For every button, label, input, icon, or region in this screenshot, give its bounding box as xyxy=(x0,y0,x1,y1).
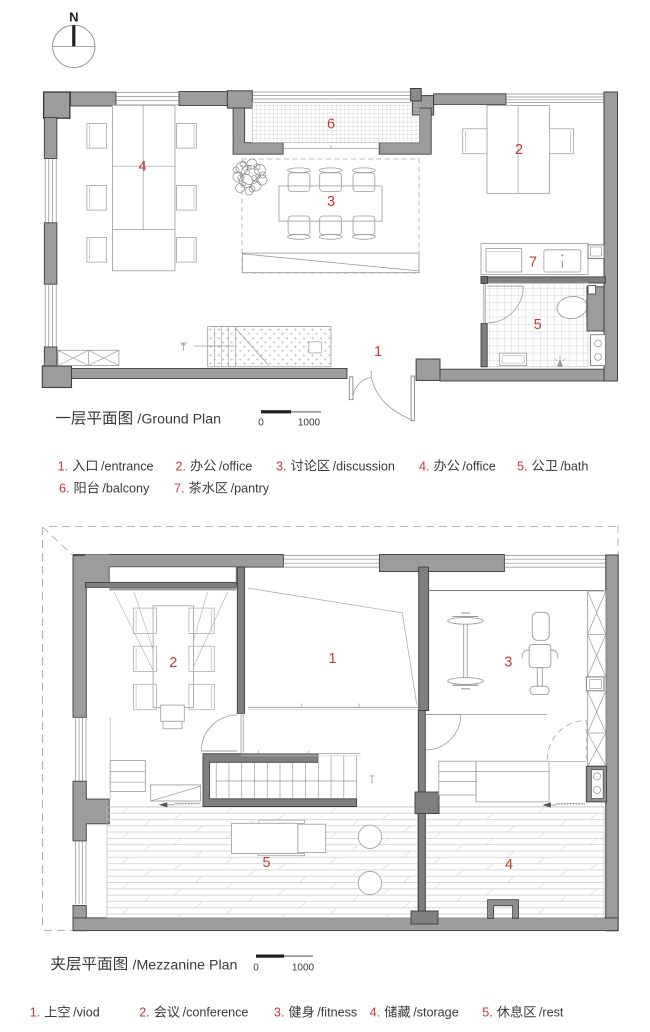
svg-text:5.: 5. xyxy=(517,459,528,473)
svg-text:7.: 7. xyxy=(174,482,185,496)
svg-text:2: 2 xyxy=(515,142,523,158)
svg-text:N: N xyxy=(69,10,78,25)
svg-text:/bath: /bath xyxy=(560,459,588,473)
svg-text:1: 1 xyxy=(374,344,382,360)
svg-text:/conference: /conference xyxy=(183,1006,249,1020)
svg-text:4.: 4. xyxy=(370,1006,381,1020)
svg-text:/balcony: /balcony xyxy=(102,482,150,496)
svg-text:7: 7 xyxy=(529,254,537,270)
svg-text:/office: /office xyxy=(462,459,495,473)
svg-text:4.: 4. xyxy=(419,459,430,473)
svg-text:/entrance: /entrance xyxy=(101,459,154,473)
svg-text:1.: 1. xyxy=(30,1006,41,1020)
svg-text:1000: 1000 xyxy=(292,963,315,974)
svg-text:/office: /office xyxy=(219,459,252,473)
svg-text:3: 3 xyxy=(327,194,335,210)
svg-text:/rest: /rest xyxy=(539,1006,564,1020)
svg-text:6: 6 xyxy=(327,116,335,132)
svg-text:3: 3 xyxy=(504,655,512,671)
svg-text:/Ground Plan: /Ground Plan xyxy=(137,412,221,428)
svg-text:2.: 2. xyxy=(176,459,187,473)
svg-text:1000: 1000 xyxy=(298,418,321,429)
svg-text:1: 1 xyxy=(329,651,337,667)
svg-text:5: 5 xyxy=(534,317,542,333)
svg-text:/fitness: /fitness xyxy=(317,1006,357,1020)
svg-text:/storage: /storage xyxy=(413,1006,459,1020)
svg-text:/Mezzanine Plan: /Mezzanine Plan xyxy=(133,957,238,973)
svg-text:2.: 2. xyxy=(139,1006,150,1020)
svg-text:2: 2 xyxy=(169,655,177,671)
svg-text:3.: 3. xyxy=(276,459,287,473)
svg-text:4: 4 xyxy=(138,159,146,175)
svg-text:5: 5 xyxy=(262,855,270,871)
svg-text:5.: 5. xyxy=(482,1006,493,1020)
svg-text:0: 0 xyxy=(258,418,264,429)
svg-text:/pantry: /pantry xyxy=(231,482,270,496)
svg-text:4: 4 xyxy=(505,857,513,873)
svg-text:0: 0 xyxy=(253,963,259,974)
svg-text:6.: 6. xyxy=(59,482,70,496)
svg-text:/viod: /viod xyxy=(73,1006,100,1020)
svg-text:/discussion: /discussion xyxy=(333,459,395,473)
svg-text:1.: 1. xyxy=(58,459,69,473)
svg-text:3.: 3. xyxy=(274,1006,285,1020)
